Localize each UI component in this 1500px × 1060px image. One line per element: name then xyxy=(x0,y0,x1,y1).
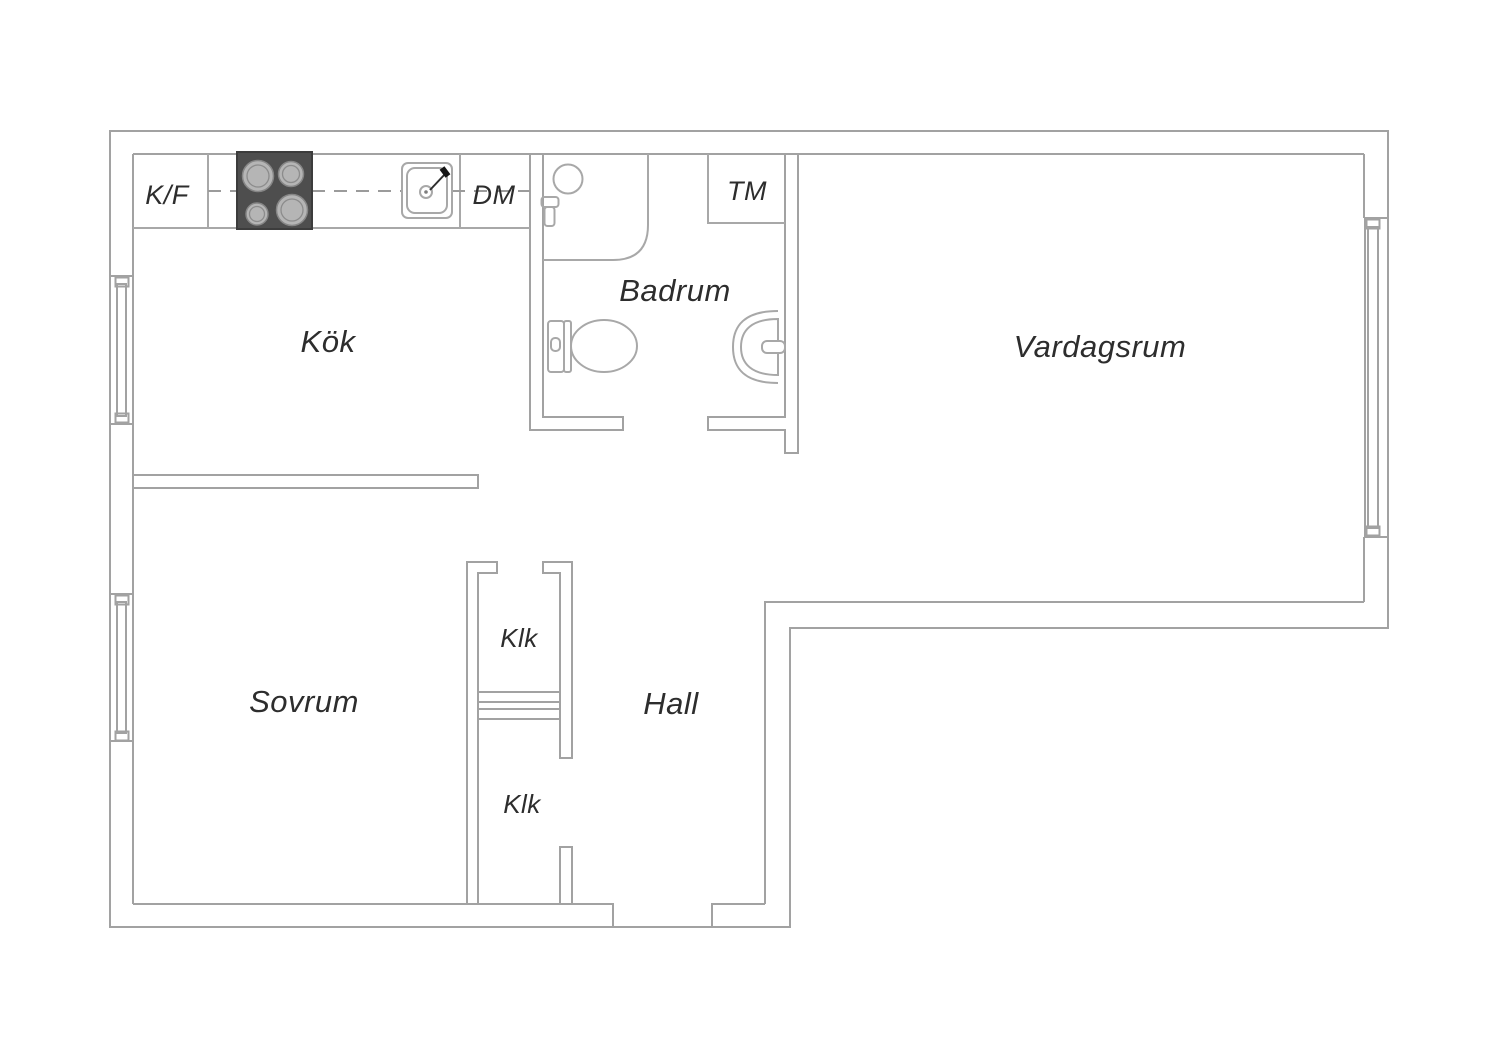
hall-label: Hall xyxy=(643,686,699,721)
toilet-icon xyxy=(548,320,637,372)
washing-machine-label: TM xyxy=(727,176,767,206)
closet-east-wall-stub xyxy=(560,847,572,904)
sink-tap-icon xyxy=(762,341,785,353)
living-room-window xyxy=(1365,218,1388,537)
living-room-label: Vardagsrum xyxy=(1014,329,1187,364)
bathroom-sink-icon xyxy=(733,311,785,383)
bathroom-west-wall xyxy=(530,154,623,430)
closet-east-wall-upper xyxy=(543,562,572,758)
dishwasher-label: DM xyxy=(473,180,516,210)
closet-lower-label: Klk xyxy=(503,789,542,819)
notch-inner-line xyxy=(765,602,1364,904)
shower-head-icon xyxy=(554,165,583,194)
shower-enclosure-icon xyxy=(543,154,648,260)
interior-walls xyxy=(133,154,798,904)
bedroom-label: Sovrum xyxy=(249,684,359,719)
kitchen-window xyxy=(110,276,133,424)
counter-outline xyxy=(133,154,530,228)
kitchen-sink-icon xyxy=(402,163,452,218)
floor-plan-svg: Kök Badrum Vardagsrum Sovrum Klk Klk Hal… xyxy=(0,0,1500,1060)
bedroom-window xyxy=(110,594,133,741)
closet-upper-label: Klk xyxy=(500,623,539,653)
kitchen-label: Kök xyxy=(301,324,357,359)
room-labels: Kök Badrum Vardagsrum Sovrum Klk Klk Hal… xyxy=(145,176,1186,819)
exterior-outer-outline xyxy=(110,131,1388,927)
stove-icon xyxy=(237,152,312,229)
kitchen-counter xyxy=(133,152,530,229)
closet-west-wall xyxy=(467,562,497,904)
kitchen-bedroom-wall xyxy=(133,475,478,488)
floor-plan-page: Kök Badrum Vardagsrum Sovrum Klk Klk Hal… xyxy=(0,0,1500,1060)
fridge-freezer-label: K/F xyxy=(145,180,190,210)
bathroom-label: Badrum xyxy=(619,273,731,308)
exterior-walls xyxy=(110,131,1388,927)
bottom-wall-inner-line xyxy=(133,904,765,927)
shower-mixer-icon xyxy=(542,197,559,226)
closet-divider-wall-lower xyxy=(478,709,560,719)
closet-divider-wall-upper xyxy=(478,692,560,702)
